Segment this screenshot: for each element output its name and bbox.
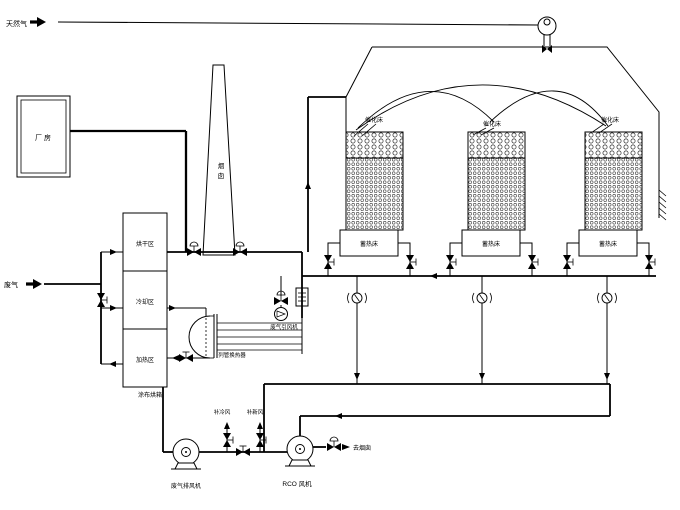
exhaust-fan-icon: [171, 439, 201, 469]
tower-1: 催化床 蓄热床: [324, 116, 416, 276]
induced-fan-label: 废气引风机: [270, 323, 298, 331]
factory-label: 厂 房: [35, 133, 51, 142]
catalyst-bed-label-2: 催化床: [483, 120, 501, 128]
to-chimney-valve: [327, 437, 341, 451]
waste-gas-inlet: 废气: [4, 249, 123, 367]
natural-gas-arrow-icon: [30, 17, 46, 27]
rco-fan-icon: [285, 436, 315, 466]
waste-gas-arrow-icon: [26, 279, 42, 289]
exchanger-return-valve: [179, 352, 193, 362]
exchanger-shell: [189, 316, 210, 358]
rco-fan: RCO 风机: [282, 436, 315, 488]
damper-symbol-1: [348, 293, 367, 303]
tower-1-left-valve: [324, 255, 334, 269]
tower-2: 催化床 蓄热床: [446, 120, 538, 276]
factory: 厂 房: [17, 96, 186, 252]
chimney: 烟 囱: [203, 65, 235, 255]
makeup-cold-air-valve: [223, 433, 233, 447]
exhaust-fan-label: 废气排风机: [171, 482, 201, 490]
gas-supply-line: 天然气: [6, 17, 556, 53]
to-chimney-line: 去烟囱: [313, 437, 371, 452]
oven-name-label: 涂布烘箱: [138, 391, 162, 399]
chimney-body: [203, 65, 235, 255]
catalyst-bed-label-1: 催化床: [365, 116, 383, 124]
tower-1-right-valve: [406, 255, 416, 269]
oven-zone-label-1: 烘干区: [136, 240, 154, 248]
oven-zone-label-3: 加热区: [136, 356, 154, 364]
regenerator-label-2: 蓄热床: [482, 240, 500, 248]
regenerator-label-1: 蓄热床: [360, 240, 378, 248]
damper-symbol-2: [473, 293, 492, 303]
tower-2-right-valve: [528, 255, 538, 269]
diagram-canvas: 天然气 厂 房 废气: [0, 0, 680, 510]
heat-exchanger-label: 列管换热器: [218, 351, 246, 359]
damper-symbol-3: [598, 293, 617, 303]
regenerator-label-3: 蓄热床: [599, 240, 617, 248]
makeup-cold-air-label: 补冷风: [214, 408, 231, 416]
rco-fan-label: RCO 风机: [282, 479, 312, 488]
tower-2-left-valve: [446, 255, 456, 269]
catalyst-bed-label-3: 催化床: [601, 116, 619, 124]
to-chimney-label: 去烟囱: [353, 444, 371, 452]
housing-vent-hatch: [659, 190, 666, 220]
process-flow-diagram: 天然气 厂 房 废气: [0, 0, 680, 510]
suction-gate-valve: [236, 446, 250, 456]
oven: 烘干区 冷却区 加热区 涂布烘箱: [123, 213, 167, 399]
natural-gas-label: 天然气: [6, 19, 27, 28]
chimney-label-bottom: 囱: [218, 171, 225, 180]
makeup-fresh-air-label: 补新风: [247, 408, 264, 416]
oven-exhaust-duct: [167, 97, 346, 318]
chimney-label-top: 烟: [218, 161, 225, 170]
roof-fan-icon: [538, 17, 556, 53]
oven-zone-label-2: 冷却区: [136, 298, 154, 306]
waste-gas-label: 废气: [4, 280, 18, 289]
manifolds: [264, 273, 656, 452]
exhaust-fan: 废气排风机: [171, 439, 201, 490]
tower-3-right-valve: [645, 255, 655, 269]
tower-3: 催化床 蓄热床: [563, 116, 655, 276]
waste-gas-valve: [97, 293, 107, 307]
exhaust-duct-valve-1: [187, 242, 201, 256]
tower-3-left-valve: [563, 255, 573, 269]
